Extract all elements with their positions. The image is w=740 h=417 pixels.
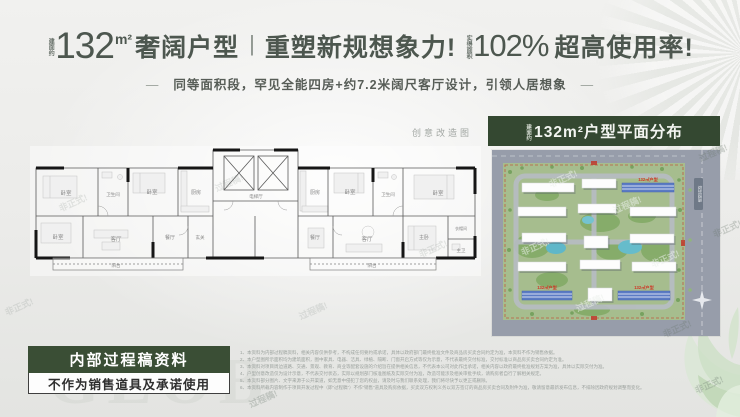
svg-text:卧室: 卧室: [60, 189, 72, 197]
building-tag: 132㎡户型: [634, 284, 654, 291]
building-tag: 132㎡户型: [638, 176, 658, 183]
svg-text:主卧: 主卧: [419, 234, 429, 241]
floorplan-drawing: 卧室 卫生间 卧室 厨房 卧室 客厅 餐厅 玄关 阳台 电梯厅 厨房 卧室 卫生…: [28, 146, 483, 310]
siteplan-road-label: 规划道路: [694, 178, 704, 210]
svg-text:电梯厅: 电梯厅: [249, 193, 263, 200]
disclaimer-line: 6、本资料所载内容制作于项目开发过程中（即“过程稿”）不作“销售”道具及购房依据…: [240, 384, 726, 391]
svg-text:餐厅: 餐厅: [310, 234, 320, 241]
headline: 建面约132m²奢阔户型|重塑新规想象力!实得面积102%超高使用率!: [0, 25, 740, 67]
subtitle-text: 同等面积段，罕见全能四房+约7.2米阔尺客厅设计，引领人居想象: [173, 78, 566, 92]
area-prefix-label: 建面约: [46, 38, 53, 56]
svg-text:卫生间: 卫生间: [106, 191, 120, 198]
svg-text:玄关: 玄关: [196, 234, 205, 241]
siteplan-title-prefix: 建面约: [525, 124, 531, 141]
disclaimer-line: 5、本资料部分图片、文字来源于公开渠道，如无意中侵犯了您的权益，请及时与我们联系…: [240, 377, 726, 384]
svg-text:餐厅: 餐厅: [165, 234, 175, 241]
building-tag: 132㎡户型: [537, 284, 557, 291]
siteplan-map: 132㎡户型 132㎡户型 132㎡户型 规划道路: [492, 150, 720, 336]
process-draft-stamp: 内部过程稿资料 不作为销售道具及承诺使用: [28, 346, 230, 394]
stamp-subtitle: 不作为销售道具及承诺使用: [28, 373, 230, 394]
floorplan-caption: 创意改造图: [392, 126, 492, 139]
disclaimer-block: 1、本资料为内部过程稿资料，相关内容仅供参考，不构成任何要约或承诺，具体以政府部…: [240, 349, 726, 391]
siteplan-panel-header: 建面约 132m²户型平面分布: [488, 116, 720, 146]
rate-prefix-label: 实得面积: [464, 35, 471, 59]
subtitle-dash-right: —: [581, 78, 595, 92]
disclaimer-line: 1、本资料为内部过程稿资料，相关内容仅供参考，不构成任何要约或承诺，具体以政府部…: [240, 349, 726, 356]
headline-divider: |: [249, 31, 255, 57]
svg-text:客厅: 客厅: [361, 235, 373, 243]
svg-text:客厅: 客厅: [110, 235, 122, 243]
rate-value: 102%: [473, 28, 548, 64]
stamp-title: 内部过程稿资料: [28, 346, 230, 373]
subtitle-dash-left: —: [146, 78, 160, 92]
area-value: 132: [55, 25, 114, 67]
svg-text:厨房: 厨房: [191, 189, 201, 196]
poster-page: GLOB 建面约132m²奢阔户型|重塑新规想象力!实得面积102%超高使用率!…: [0, 0, 740, 417]
svg-text:卧室: 卧室: [146, 188, 158, 196]
svg-text:厨房: 厨房: [310, 189, 320, 196]
svg-text:规划道路: 规划道路: [697, 186, 704, 204]
svg-text:主卫: 主卫: [457, 247, 466, 253]
svg-text:卧室: 卧室: [432, 189, 444, 197]
siteplan-title: 132m²户型平面分布: [534, 120, 683, 142]
svg-text:阳台: 阳台: [368, 262, 377, 269]
disclaimer-line: 2、本户型图所示面积均为建筑面积，图中家具、电器、洁具、绿植、隔断、门窗开启方式…: [240, 356, 726, 363]
svg-text:卧室: 卧室: [52, 233, 64, 241]
svg-text:卫生间: 卫生间: [381, 191, 395, 198]
svg-text:卧室: 卧室: [344, 188, 356, 196]
headline-part-2: 重塑新规想象力!: [265, 28, 456, 64]
svg-text:衣帽间: 衣帽间: [455, 225, 467, 231]
svg-text:阳台: 阳台: [112, 262, 121, 269]
headline-part-1: 奢阔户型: [135, 28, 239, 64]
disclaimer-line: 3、本资料对项目周边道路、交通、景观、教育、商业等配套设施的介绍旨在提供相关信息…: [240, 363, 726, 370]
area-unit: m²: [115, 31, 132, 47]
subheadline: —同等面积段，罕见全能四房+约7.2米阔尺客厅设计，引领人居想象—: [0, 74, 740, 93]
headline-part-3: 超高使用率!: [554, 28, 693, 64]
disclaimer-line: 4、户型创意改造仅为设计示意，不代表交付状态，实际以规划部门核准图纸及实际交付为…: [240, 370, 726, 377]
